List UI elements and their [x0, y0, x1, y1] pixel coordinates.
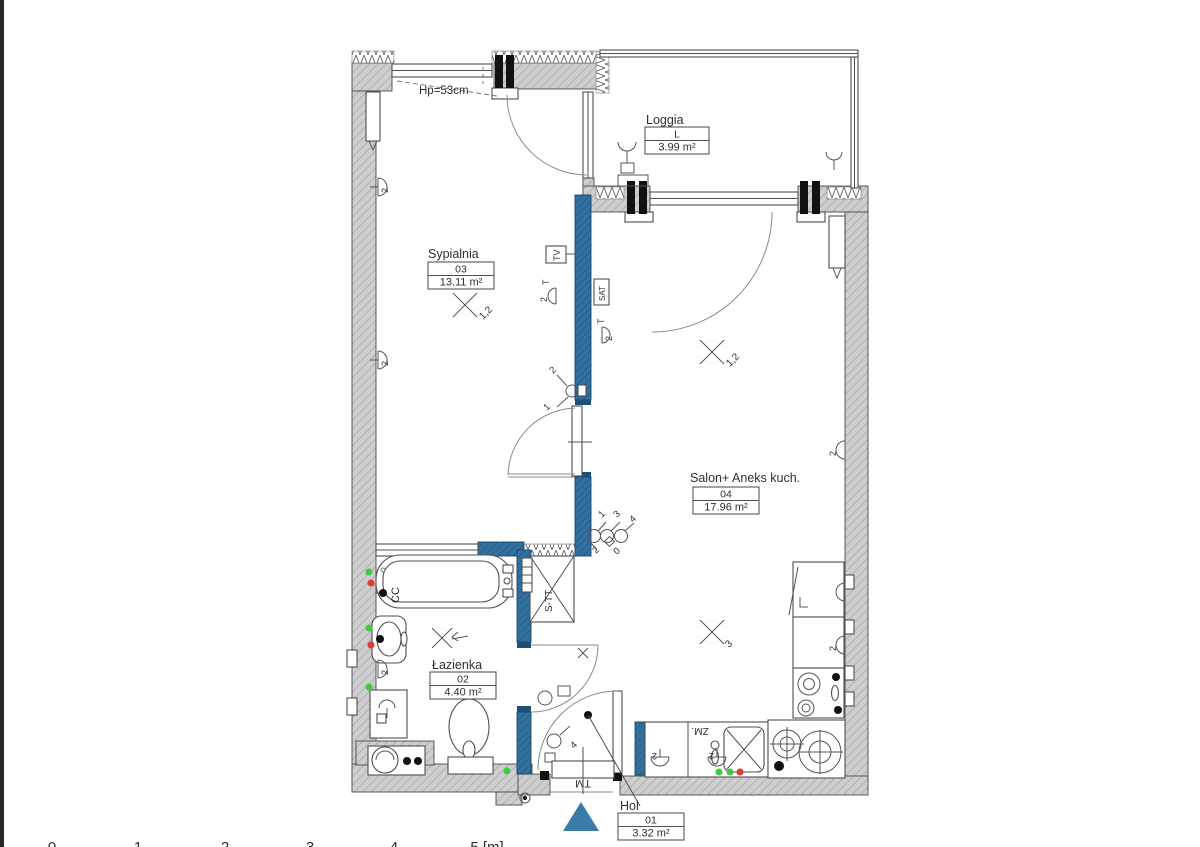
radiator-bedroom: [366, 92, 380, 150]
radiator-living: [829, 216, 845, 278]
svg-text:3: 3: [306, 839, 314, 847]
room-label-loggia: Loggia L 3.99 m²: [645, 113, 709, 154]
stud-wall: [376, 544, 478, 556]
svg-text:TM: TM: [575, 777, 591, 789]
fridge: [789, 562, 844, 617]
svg-text:17.96 m²: 17.96 m²: [704, 502, 748, 514]
svg-text:Hol: Hol: [620, 799, 639, 813]
svg-text:0: 0: [611, 546, 623, 558]
bedroom-door: [508, 406, 592, 477]
svg-text:2: 2: [709, 751, 714, 761]
wall-lamp-left: [618, 142, 648, 186]
hob-unit: [793, 668, 844, 718]
svg-text:02: 02: [457, 674, 469, 686]
svg-text:CC: CC: [390, 587, 402, 603]
kitchen-counter: ZM.: [645, 720, 845, 778]
screen-edge: [0, 0, 4, 847]
svg-text:01: 01: [645, 815, 657, 827]
bathroom-door: [531, 645, 598, 712]
svg-text:Sypialnia: Sypialnia: [428, 247, 479, 261]
ceiling-light-bedroom: 1,2: [453, 293, 495, 322]
loggia-railing: [600, 50, 858, 188]
oven-unit: [768, 720, 845, 778]
svg-text:Loggia: Loggia: [646, 113, 684, 127]
bedroom-loggia-door-frame: [583, 92, 593, 178]
svg-text:Hp=53cm: Hp=53cm: [419, 85, 469, 97]
tv-socket: 2: [539, 288, 556, 304]
svg-text:1,2: 1,2: [724, 351, 742, 369]
svg-text:1: 1: [541, 402, 553, 414]
svg-text:2: 2: [828, 451, 838, 456]
svg-text:2: 2: [828, 646, 838, 651]
svg-text:L: L: [674, 129, 680, 141]
svg-text:2: 2: [590, 545, 602, 557]
svg-text:2: 2: [380, 670, 390, 675]
svg-text:1: 1: [596, 509, 608, 521]
entrance-marker: [563, 802, 599, 831]
toilet: [448, 699, 493, 774]
room-label-lazienka: Łazienka 02 4.40 m²: [430, 658, 496, 699]
svg-text:2: 2: [604, 336, 614, 341]
socket-living-right: 2: [828, 441, 845, 459]
washbasin: [372, 616, 407, 663]
svg-text:0: 0: [48, 839, 56, 847]
svg-text:2: 2: [221, 839, 229, 847]
svg-text:4: 4: [568, 740, 580, 752]
svg-text:S-TT: S-TT: [544, 590, 555, 612]
svg-text:4.40 m²: 4.40 m²: [444, 687, 482, 699]
balcony-window: [650, 192, 798, 205]
ceiling-light-living-lower: 3: [700, 620, 735, 650]
svg-text:T: T: [596, 318, 606, 324]
svg-text:2: 2: [652, 751, 657, 761]
svg-text:5 [m]: 5 [m]: [470, 839, 503, 847]
svg-text:Łazienka: Łazienka: [432, 658, 482, 672]
shaft: S-TT: [522, 556, 574, 622]
svg-text:1,2: 1,2: [477, 304, 495, 322]
sat-outlet: SAT: [594, 279, 609, 305]
floor-plan-drawing: CC S-TT: [0, 0, 1200, 847]
svg-text:04: 04: [720, 489, 732, 501]
wall-box: [347, 698, 357, 715]
tv-outlet: TV: [546, 246, 575, 263]
svg-text:2: 2: [547, 365, 559, 377]
svg-text:3.99 m²: 3.99 m²: [658, 142, 696, 154]
exterior-walls: [352, 63, 868, 805]
partition-walls: [478, 195, 645, 775]
svg-text:2: 2: [539, 297, 549, 302]
switch-cluster-living: 1 3 4 2 0: [588, 509, 639, 558]
kitchen-tall-units: [789, 562, 854, 718]
svg-text:Salon+ Aneks kuch.: Salon+ Aneks kuch.: [690, 471, 800, 485]
washing-machine: [370, 690, 407, 738]
sat-socket: 2: [602, 327, 614, 343]
svg-text:3: 3: [723, 638, 735, 650]
bedroom-loggia-door-arc: [507, 95, 587, 175]
vent-fan-unit: [368, 746, 425, 775]
svg-text:1: 1: [134, 839, 142, 847]
living-loggia-door-arc: [652, 212, 772, 332]
room-label-hol: Hol 01 3.32 m²: [618, 799, 684, 840]
svg-text:TV: TV: [552, 249, 562, 261]
svg-text:2: 2: [380, 188, 390, 193]
floor-plan: CC S-TT: [0, 0, 1200, 847]
doormat: TM: [552, 747, 614, 794]
scale-bar: 0 1 2 3 4 5 [m]: [48, 839, 504, 847]
svg-text:SAT: SAT: [598, 286, 607, 301]
svg-text:4: 4: [390, 839, 398, 847]
room-label-sypialnia: Sypialnia 03 13.11 m²: [428, 247, 494, 289]
svg-text:4: 4: [627, 514, 639, 526]
svg-text:03: 03: [455, 264, 467, 276]
svg-text:ZM.: ZM.: [691, 725, 708, 736]
svg-text:T: T: [541, 279, 551, 285]
wall-box: [347, 650, 357, 667]
svg-text:2: 2: [380, 361, 390, 366]
bedroom-window: [392, 64, 492, 77]
svg-text:3.32 m²: 3.32 m²: [632, 828, 670, 840]
wall-lamp-right: [826, 152, 842, 170]
svg-text:3: 3: [611, 509, 623, 521]
room-label-salon: Salon+ Aneks kuch. 04 17.96 m²: [690, 471, 800, 514]
ceiling-light-living-upper: 1,2: [700, 340, 742, 369]
svg-text:13.11 m²: 13.11 m²: [440, 277, 483, 289]
ceiling-light-bathroom: [432, 628, 468, 648]
bathtub: CC: [376, 555, 513, 608]
